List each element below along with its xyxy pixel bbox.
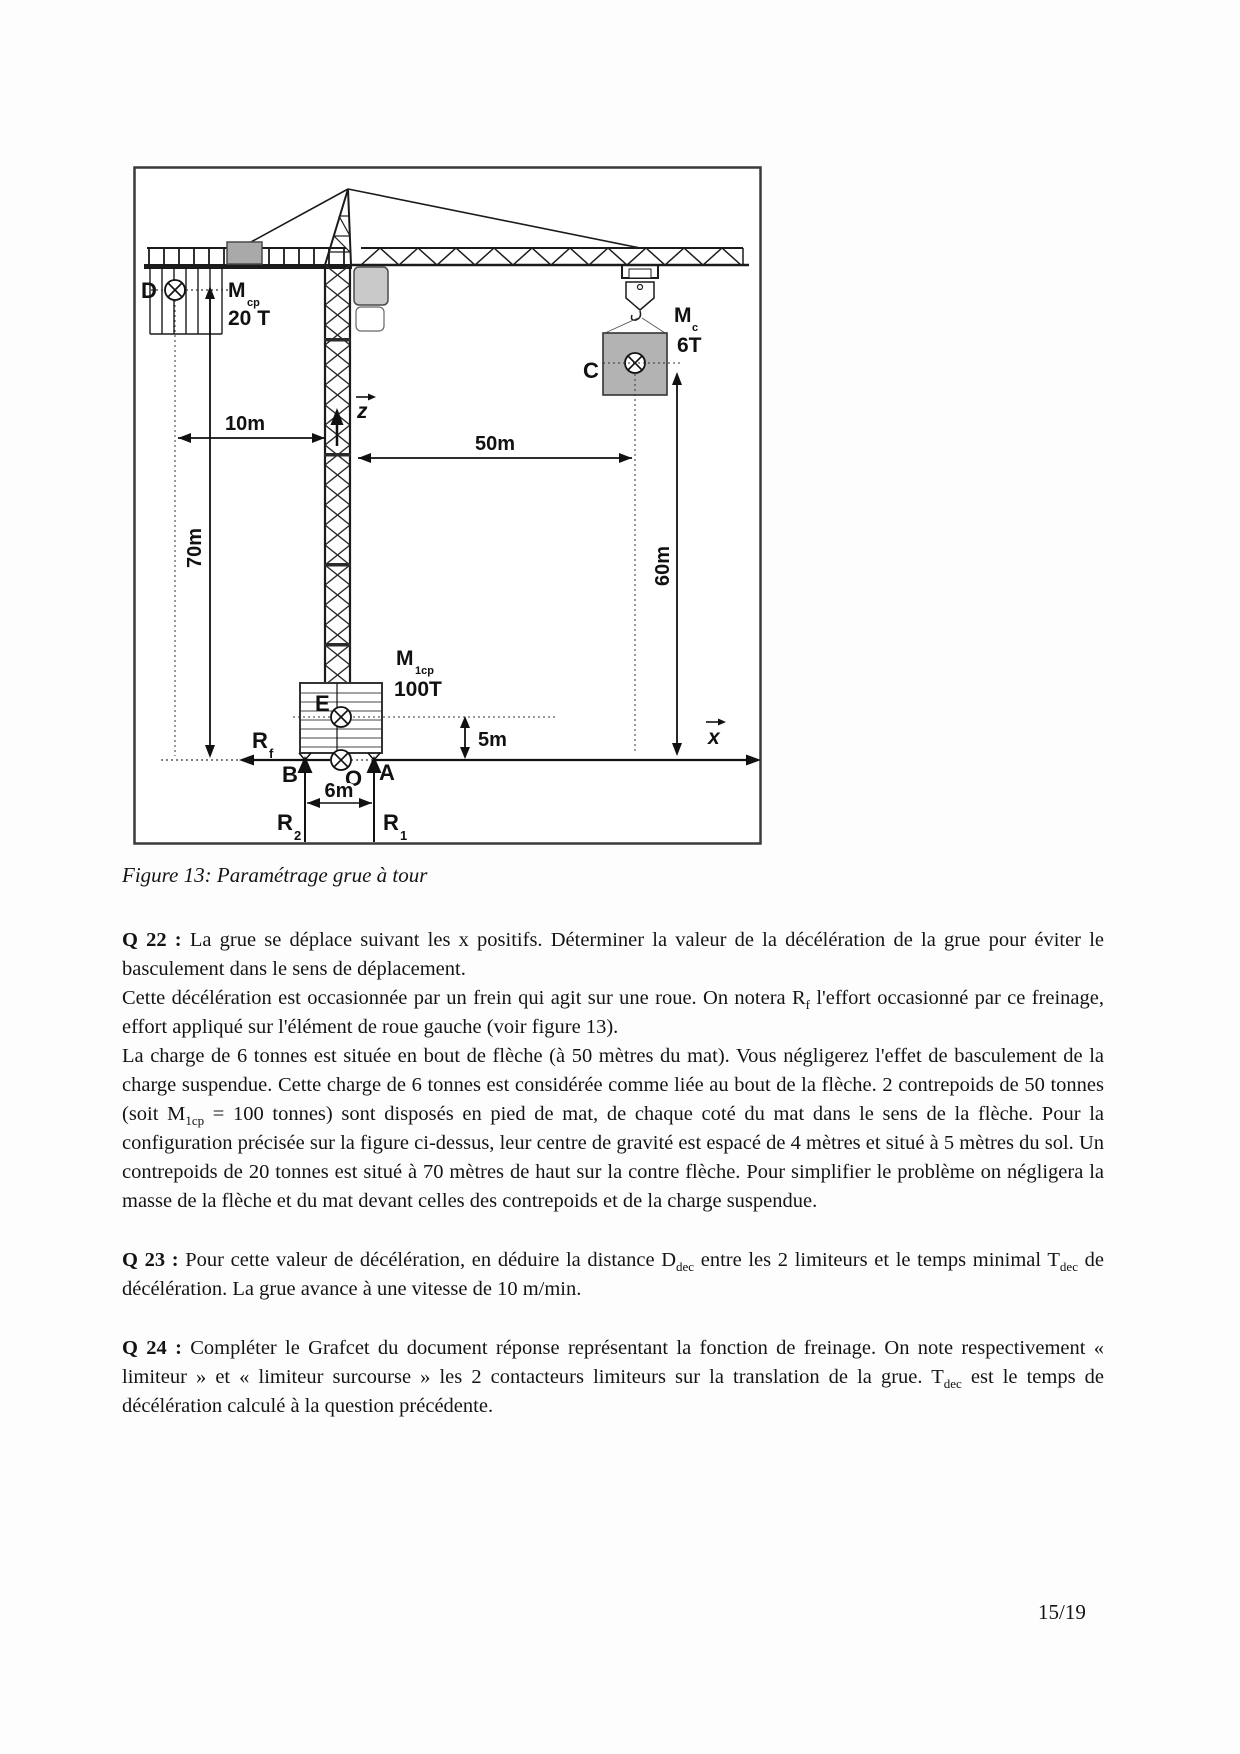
q24-label: Q 24 : <box>122 1337 182 1359</box>
operator-cab <box>354 267 388 305</box>
svg-text:1: 1 <box>400 828 407 843</box>
q22-paragraph-3: La charge de 6 tonnes est située en bout… <box>122 1042 1104 1216</box>
q22-paragraph-1: Q 22 : La grue se déplace suivant les x … <box>122 926 1104 984</box>
point-c-label: C <box>583 358 599 383</box>
dim-60m-label: 60m <box>652 546 674 586</box>
q24-paragraph: Q 24 : Compléter le Grafcet du document … <box>122 1334 1104 1421</box>
dim-5m-label: 5m <box>478 729 507 751</box>
point-e-label: E <box>315 691 330 716</box>
document-page: D <box>0 0 1240 1754</box>
figure-13-crane-diagram: D <box>133 166 762 845</box>
dim-70m-label: 70m <box>184 528 206 568</box>
point-d-marker <box>165 280 185 300</box>
dim-10m-label: 10m <box>225 413 265 435</box>
svg-text:20 T: 20 T <box>228 307 270 330</box>
svg-text:1cp: 1cp <box>415 665 434 677</box>
question-23: Q 23 : Pour cette valeur de décélération… <box>122 1246 1104 1304</box>
svg-text:M: M <box>228 279 246 302</box>
page-number: 15/19 <box>1038 1600 1086 1625</box>
figure-caption: Figure 13: Paramétrage grue à tour <box>122 860 1104 890</box>
point-e-marker <box>331 707 351 727</box>
point-b-label: B <box>282 762 298 787</box>
q22-label: Q 22 : <box>122 929 182 951</box>
svg-text:M: M <box>674 304 692 327</box>
question-24: Q 24 : Compléter le Grafcet du document … <box>122 1334 1104 1421</box>
svg-text:R: R <box>383 810 399 835</box>
svg-text:f: f <box>269 746 274 761</box>
m1cp-subscript: 1cp <box>185 1113 204 1128</box>
svg-text:R: R <box>252 728 268 753</box>
z-axis-label: z <box>356 400 368 423</box>
x-axis-label: x <box>707 726 721 749</box>
svg-text:M: M <box>396 647 414 670</box>
cab-lower-panel <box>356 307 384 331</box>
svg-text:100T: 100T <box>394 678 442 701</box>
svg-text:c: c <box>692 322 698 334</box>
q23-label: Q 23 : <box>122 1249 179 1271</box>
q23-paragraph: Q 23 : Pour cette valeur de décélération… <box>122 1246 1104 1304</box>
body-text: Figure 13: Paramétrage grue à tour Q 22 … <box>122 860 1104 1451</box>
dim-6m-label: 6m <box>325 780 354 802</box>
tdec-subscript-2: dec <box>944 1376 962 1391</box>
tdec-subscript: dec <box>1060 1259 1078 1274</box>
svg-text:R: R <box>277 810 293 835</box>
point-d-label: D <box>141 278 157 303</box>
q22-paragraph-2: Cette décélération est occasionnée par u… <box>122 984 1104 1042</box>
ddec-subscript: dec <box>676 1259 694 1274</box>
mast <box>324 265 351 683</box>
counter-jib-ballast-box <box>227 242 262 264</box>
question-22: Q 22 : La grue se déplace suivant les x … <box>122 926 1104 1216</box>
svg-text:2: 2 <box>294 828 301 843</box>
svg-text:6T: 6T <box>677 334 702 357</box>
point-a-label: A <box>379 760 395 785</box>
dim-50m-label: 50m <box>475 433 515 455</box>
